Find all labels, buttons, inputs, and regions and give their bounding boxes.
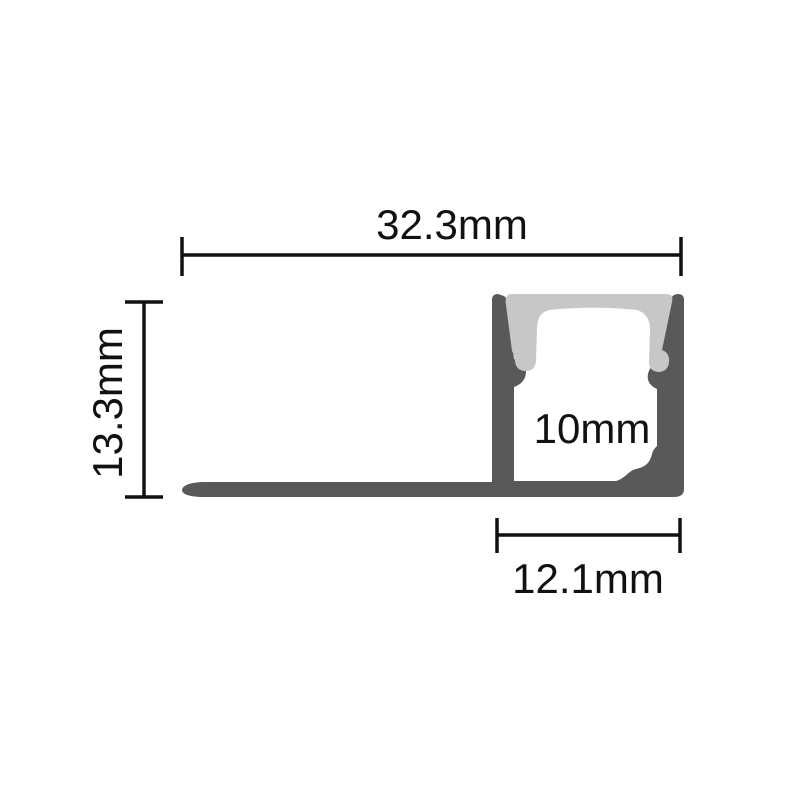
diffuser-cover-shape: [506, 294, 673, 372]
dimension-label-overall-height: 13.3mm: [84, 327, 131, 479]
dimension-inner-width: 10mm: [534, 405, 651, 452]
dimension-overall-width: 32.3mm: [182, 201, 681, 276]
diagram-canvas: 32.3mm 13.3mm 10mm 12.1mm: [0, 0, 800, 800]
dimension-channel-width: 12.1mm: [497, 518, 680, 602]
profile-shape-group: [182, 294, 684, 497]
dimension-label-overall-width: 32.3mm: [376, 201, 528, 248]
profile-body-shape: [182, 294, 684, 497]
dimension-label-inner-width: 10mm: [534, 405, 651, 452]
dimension-overall-height: 13.3mm: [84, 302, 163, 497]
profile-cross-section-drawing: 32.3mm 13.3mm 10mm 12.1mm: [0, 0, 800, 800]
dimension-label-channel-width: 12.1mm: [512, 555, 664, 602]
